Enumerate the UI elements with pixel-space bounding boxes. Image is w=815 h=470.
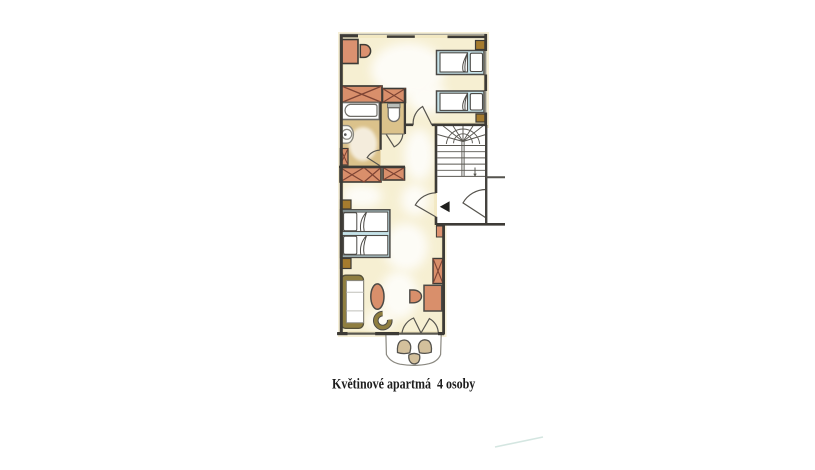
svg-text:Květinové apartmá 4 osoby: Květinové apartmá 4 osoby — [332, 377, 476, 393]
